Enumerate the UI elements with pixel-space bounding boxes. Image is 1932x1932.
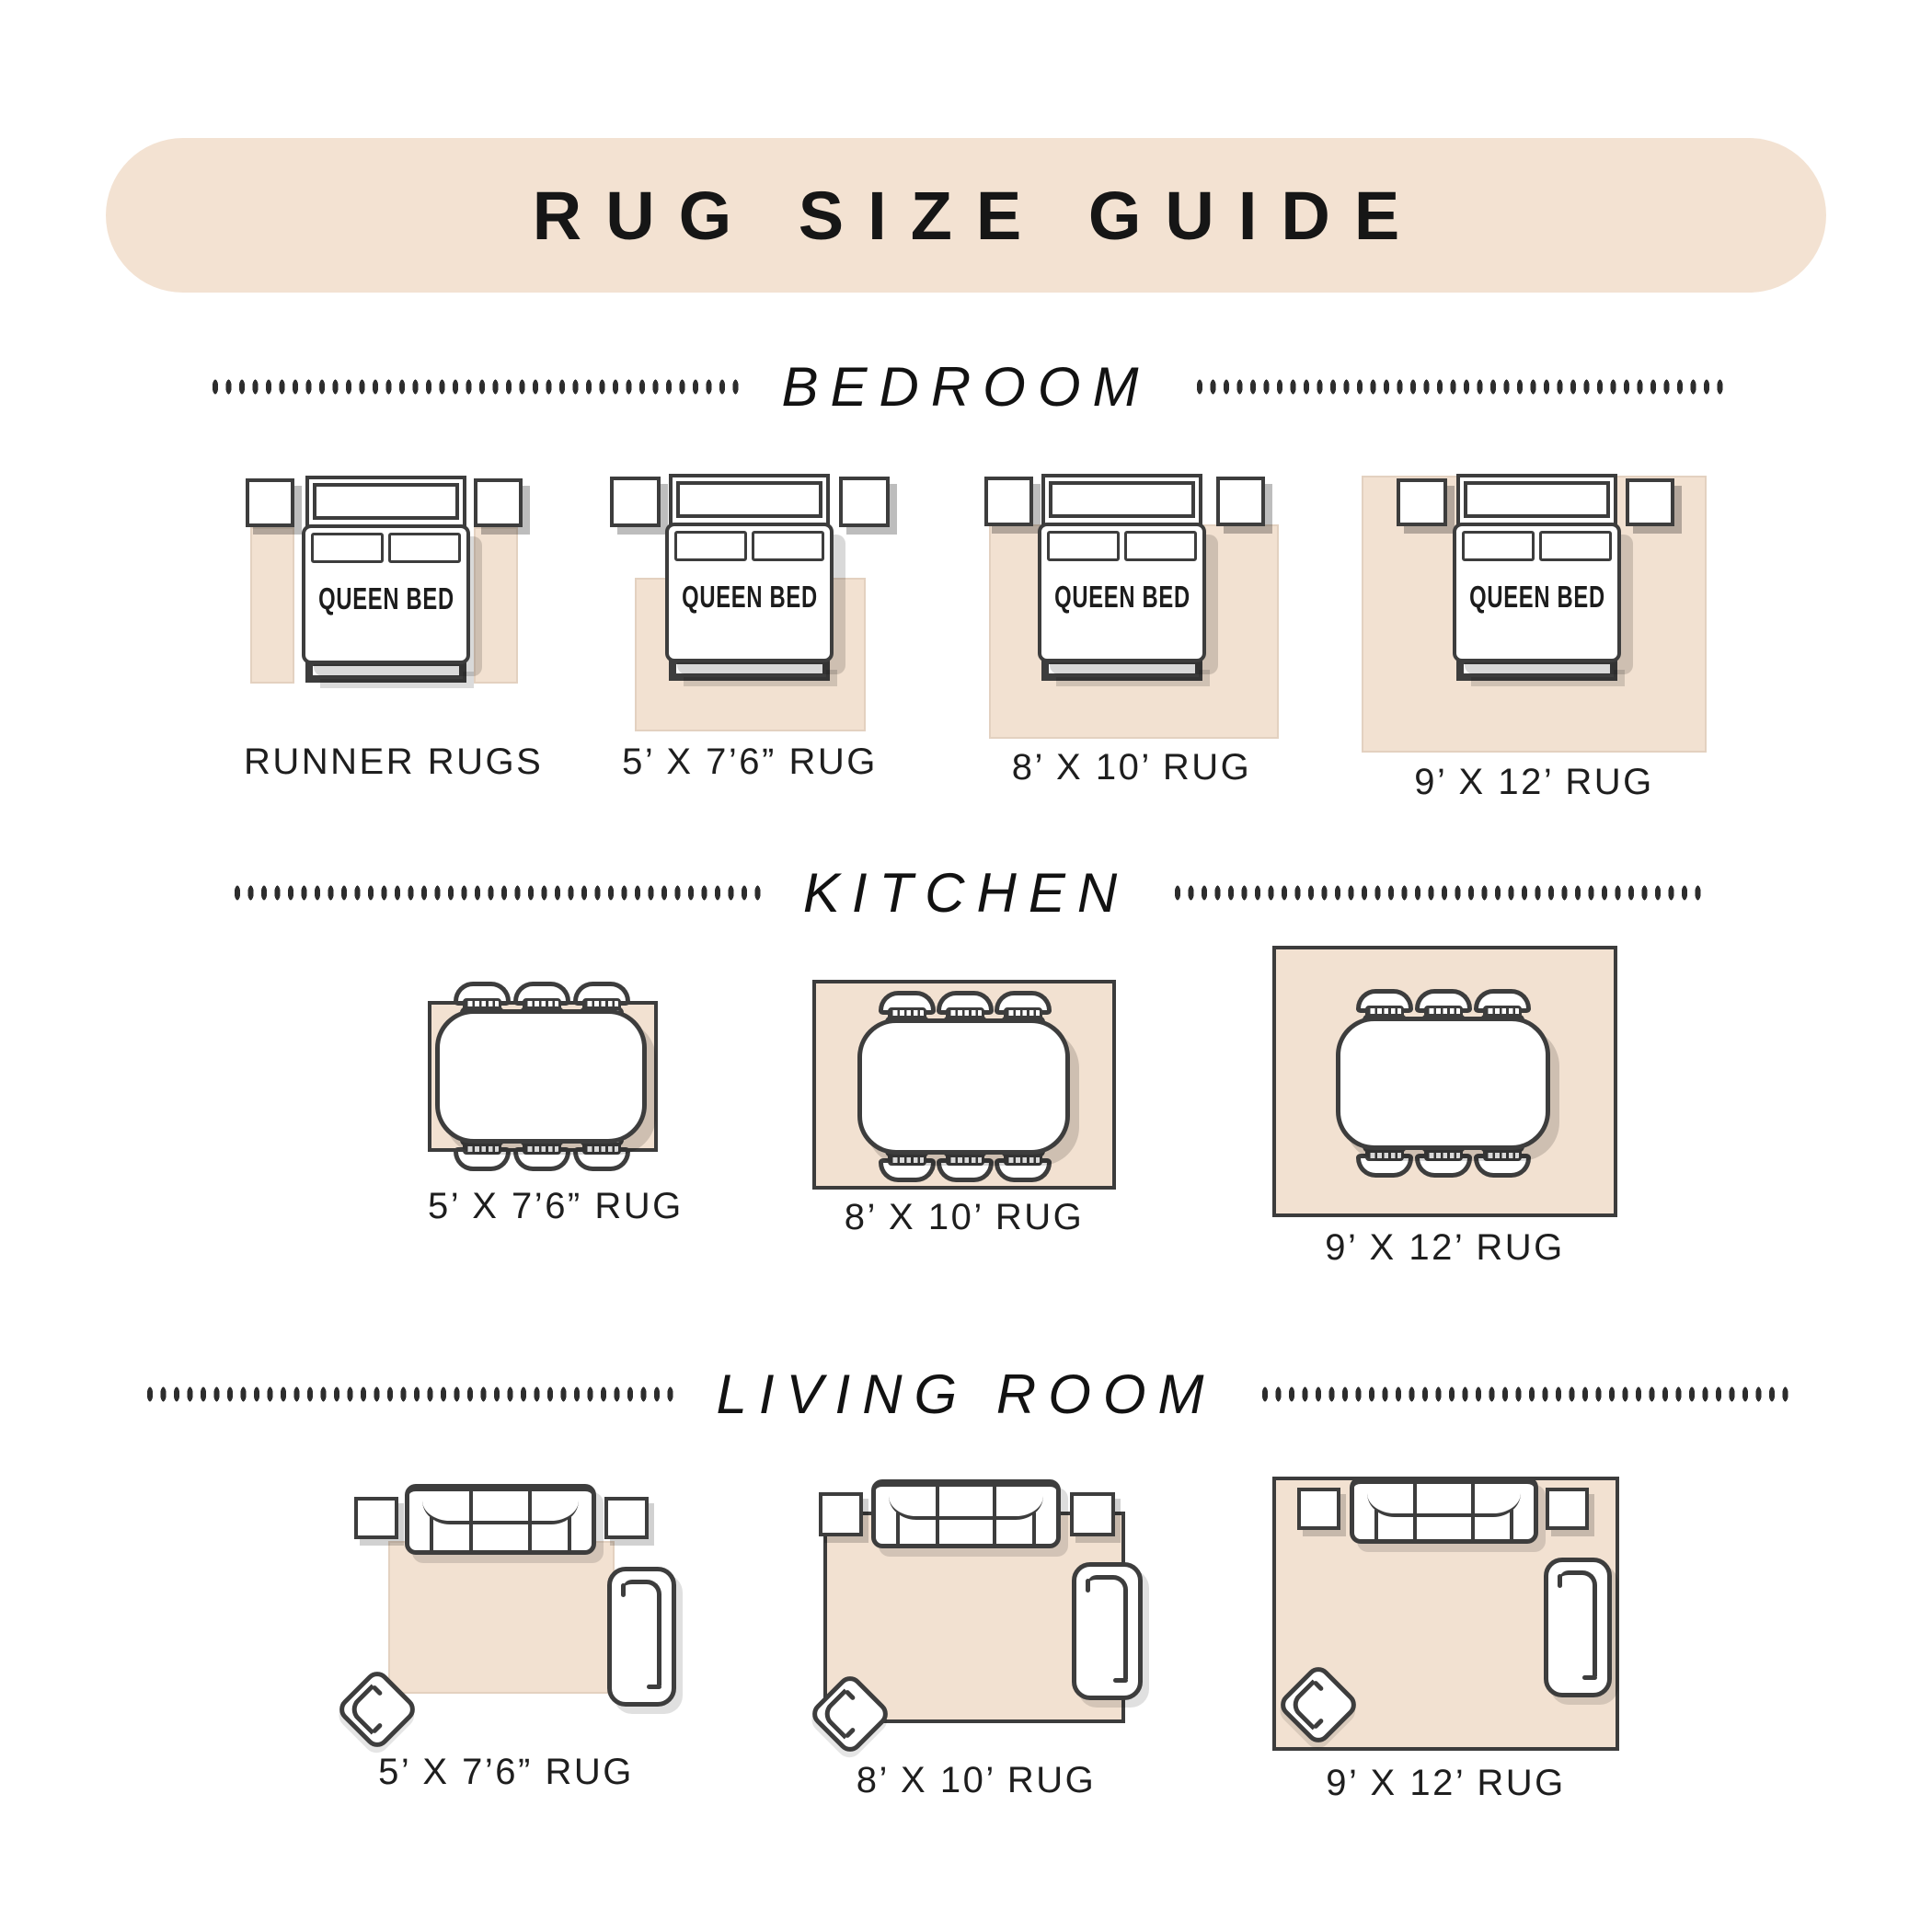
diagram-caption: 9’ X 12’ RUG bbox=[1272, 1227, 1617, 1268]
bed-headboard bbox=[1049, 481, 1195, 518]
dotted-line bbox=[231, 885, 761, 901]
bed-footboard bbox=[673, 661, 826, 677]
nightstand bbox=[610, 477, 661, 527]
pillow bbox=[1124, 531, 1197, 561]
sofa-arm bbox=[1374, 1510, 1378, 1539]
dotted-line bbox=[1193, 379, 1723, 395]
sofa-cushion-divider bbox=[936, 1487, 939, 1544]
chaise-chair bbox=[1544, 1558, 1612, 1697]
bed-footboard bbox=[1045, 661, 1199, 677]
diagram-caption: 5’ X 7’6” RUG bbox=[428, 1186, 658, 1226]
sofa-cushion-divider bbox=[1413, 1484, 1417, 1539]
sofa-arm bbox=[430, 1517, 433, 1550]
queen-bed: QUEEN BED bbox=[665, 474, 834, 681]
nightstand bbox=[839, 477, 890, 527]
dining-table bbox=[435, 1009, 647, 1144]
diagram-caption: 5’ X 7’6” RUG bbox=[610, 742, 890, 782]
sofa bbox=[1350, 1477, 1538, 1544]
kitchen-8x10-diagram bbox=[812, 980, 1116, 1190]
side-table bbox=[1070, 1492, 1115, 1536]
area-rug bbox=[388, 1541, 615, 1694]
side-table bbox=[354, 1497, 398, 1539]
pillow bbox=[752, 531, 824, 561]
sofa-cushion-divider bbox=[528, 1491, 532, 1550]
bedroom-5x76-diagram: QUEEN BED bbox=[610, 474, 890, 736]
livingroom-9x12-diagram bbox=[1272, 1477, 1619, 1751]
sofa-backline bbox=[1367, 1484, 1521, 1517]
nightstand bbox=[1216, 477, 1265, 526]
diagram-caption: 8’ X 10’ RUG bbox=[812, 1197, 1116, 1237]
pillow bbox=[1462, 531, 1535, 561]
dining-table bbox=[1336, 1017, 1550, 1150]
sofa-backline bbox=[889, 1487, 1043, 1520]
runner-rug bbox=[250, 527, 294, 684]
bed-footboard bbox=[1460, 661, 1614, 677]
livingroom-5x76-diagram bbox=[336, 1477, 676, 1753]
nightstand bbox=[1397, 478, 1447, 526]
diagram-caption: RUNNER RUGS bbox=[244, 742, 524, 782]
bed-footboard bbox=[309, 662, 463, 679]
nightstand bbox=[1626, 478, 1674, 526]
pillow bbox=[674, 531, 747, 561]
dotted-line bbox=[1171, 885, 1701, 901]
section-header-living-room: LIVING ROOM bbox=[0, 1364, 1932, 1423]
sofa-arm bbox=[568, 1517, 571, 1550]
chaise-backline bbox=[1087, 1575, 1128, 1679]
dotted-line bbox=[144, 1386, 673, 1402]
nightstand bbox=[474, 478, 523, 527]
sofa-cushion-divider bbox=[469, 1491, 473, 1550]
pillow bbox=[311, 533, 384, 563]
chaise-chair bbox=[1072, 1562, 1143, 1700]
queen-bed: QUEEN BED bbox=[302, 476, 470, 683]
bed-label: QUEEN BED bbox=[318, 581, 454, 616]
bed-label: QUEEN BED bbox=[1054, 580, 1190, 615]
diagram-caption: 9’ X 12’ RUG bbox=[1272, 1763, 1619, 1803]
section-header-bedroom: BEDROOM bbox=[0, 357, 1932, 416]
page-title: RUG SIZE GUIDE bbox=[509, 177, 1423, 255]
bedroom-9x12-diagram: QUEEN BED bbox=[1362, 474, 1707, 753]
side-table bbox=[819, 1492, 863, 1536]
section-title: KITCHEN bbox=[803, 861, 1129, 925]
sofa-arm bbox=[896, 1512, 900, 1544]
bed-mattress: QUEEN BED bbox=[1453, 523, 1621, 662]
chaise-chair bbox=[607, 1567, 676, 1707]
side-table bbox=[1297, 1488, 1340, 1530]
bed-headboard bbox=[313, 483, 459, 520]
queen-bed: QUEEN BED bbox=[1453, 474, 1621, 681]
diagram-caption: 8’ X 10’ RUG bbox=[984, 747, 1279, 788]
bed-mattress: QUEEN BED bbox=[302, 524, 470, 664]
sofa-backline bbox=[422, 1491, 579, 1524]
bedroom-8x10-diagram: QUEEN BED bbox=[984, 474, 1279, 741]
kitchen-9x12-diagram bbox=[1272, 946, 1617, 1217]
sofa-arm bbox=[1032, 1512, 1036, 1544]
livingroom-8x10-diagram bbox=[808, 1477, 1144, 1757]
section-title: LIVING ROOM bbox=[716, 1363, 1215, 1426]
accent-chair-backline bbox=[346, 1684, 397, 1734]
bed-label: QUEEN BED bbox=[682, 580, 818, 615]
diagram-caption: 8’ X 10’ RUG bbox=[808, 1760, 1144, 1800]
diagram-caption: 9’ X 12’ RUG bbox=[1362, 762, 1707, 802]
section-header-kitchen: KITCHEN bbox=[0, 863, 1932, 922]
bed-headboard bbox=[1464, 481, 1610, 518]
sofa-arm bbox=[1510, 1510, 1513, 1539]
pillow bbox=[1047, 531, 1120, 561]
nightstand bbox=[246, 478, 294, 527]
pillow bbox=[1539, 531, 1612, 561]
accent-chair-backline bbox=[819, 1688, 869, 1739]
pillow bbox=[388, 533, 461, 563]
sofa bbox=[405, 1484, 596, 1555]
dotted-line bbox=[1259, 1386, 1788, 1402]
sofa bbox=[871, 1479, 1061, 1548]
bed-mattress: QUEEN BED bbox=[1038, 523, 1206, 662]
dotted-line bbox=[209, 379, 739, 395]
header-banner: RUG SIZE GUIDE bbox=[106, 138, 1826, 293]
nightstand bbox=[984, 477, 1033, 526]
runner-rug bbox=[474, 527, 518, 684]
bedroom-runner-diagram: QUEEN BED bbox=[244, 474, 524, 687]
bed-headboard bbox=[676, 481, 822, 518]
sofa-cushion-divider bbox=[993, 1487, 996, 1544]
side-table bbox=[1546, 1488, 1589, 1530]
bed-label: QUEEN BED bbox=[1469, 580, 1605, 615]
section-title: BEDROOM bbox=[781, 355, 1150, 419]
sofa-cushion-divider bbox=[1471, 1484, 1475, 1539]
queen-bed: QUEEN BED bbox=[1038, 474, 1206, 681]
dining-table bbox=[857, 1018, 1070, 1155]
rug-size-guide: RUG SIZE GUIDE BEDROOM QUEEN BED RUNNER … bbox=[0, 0, 1932, 1932]
diagram-caption: 5’ X 7’6” RUG bbox=[336, 1752, 676, 1792]
bed-mattress: QUEEN BED bbox=[665, 523, 834, 662]
side-table bbox=[604, 1497, 649, 1539]
kitchen-5x76-diagram bbox=[428, 980, 658, 1175]
chaise-backline bbox=[1559, 1570, 1597, 1676]
accent-chair-backline bbox=[1287, 1679, 1338, 1730]
chaise-backline bbox=[623, 1580, 661, 1685]
